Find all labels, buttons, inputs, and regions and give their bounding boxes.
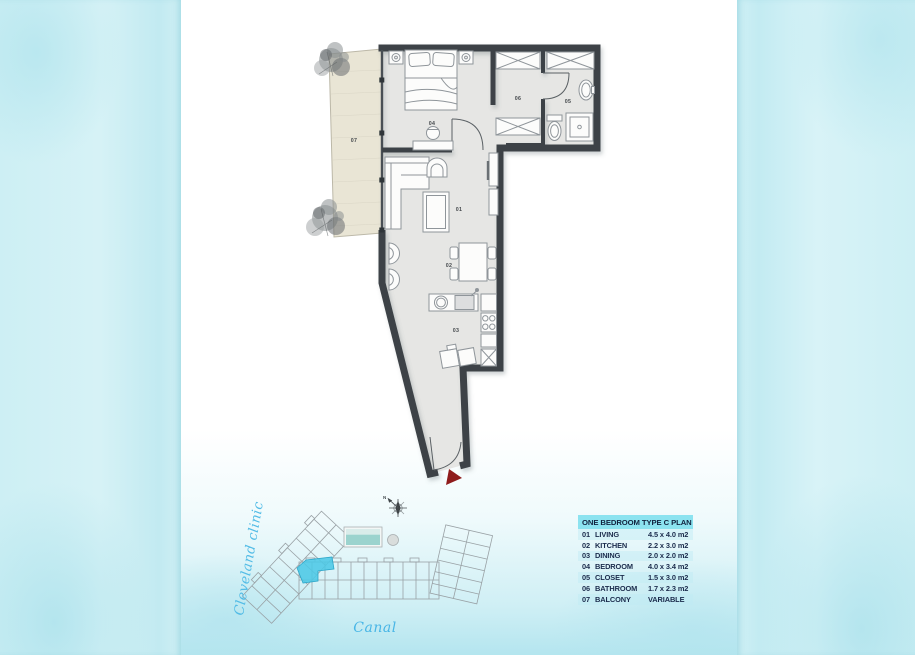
legend-row-closet: 05 CLOSET 1.5 x 3.0 m2 — [578, 572, 693, 583]
legend-room-dim: 4.5 x 4.0 m2 — [648, 530, 693, 539]
legend-row-living: 01 LIVING 4.5 x 4.0 m2 — [578, 529, 693, 540]
balcony-area: 07 — [329, 49, 382, 237]
legend-row-balcony: 07 BALCONY VARIABLE — [578, 594, 693, 605]
wardrobe-icon — [496, 118, 540, 135]
legend-room-dim: 1.5 x 3.0 m2 — [648, 573, 693, 582]
legend-room-dim: VARIABLE — [648, 595, 693, 604]
tree-icon — [314, 42, 350, 76]
nightstand-icon — [389, 51, 403, 64]
legend-room-dim: 4.0 x 3.4 m2 — [648, 562, 693, 571]
legend-room-dim: 1.7 x 2.3 m2 — [648, 584, 693, 593]
legend-room-name: DINING — [595, 551, 648, 560]
legend-room-dim: 2.2 x 3.0 m2 — [648, 541, 693, 550]
legend-room-id: 05 — [582, 573, 595, 582]
coffee-table-icon — [423, 192, 449, 232]
legend-row-bathroom: 06 BATHROOM 1.7 x 2.3 m2 — [578, 583, 693, 594]
legend-room-id: 03 — [582, 551, 595, 560]
site-round-feature — [388, 535, 399, 546]
legend-room-name: BATHROOM — [595, 584, 648, 593]
washer-icon — [481, 349, 497, 366]
legend-room-name: CLOSET — [595, 573, 648, 582]
canal-label: Canal — [353, 620, 396, 636]
room-label-living: 01 — [456, 207, 463, 213]
cleveland-clinic-label: Cleveland clinic — [231, 500, 267, 616]
legend-row-dining: 03 DINING 2.0 x 2.0 m2 — [578, 551, 693, 562]
legend-room-id: 02 — [582, 541, 595, 550]
legend-title: ONE BEDROOM TYPE C PLAN — [578, 515, 693, 529]
legend-row-bedroom: 04 BEDROOM 4.0 x 3.4 m2 — [578, 561, 693, 572]
legend-room-name: BALCONY — [595, 595, 648, 604]
legend-room-id: 04 — [582, 562, 595, 571]
bath-storage-icon — [547, 52, 594, 69]
legend-room-id: 06 — [582, 584, 595, 593]
legend-panel: ONE BEDROOM TYPE C PLAN 01 LIVING 4.5 x … — [578, 515, 693, 605]
legend-row-kitchen: 02 KITCHEN 2.2 x 3.0 m2 — [578, 540, 693, 551]
site-wing-right — [430, 525, 493, 604]
compass-icon: N — [383, 495, 407, 517]
compass-north-letter: N — [383, 495, 387, 500]
toilet-icon — [547, 115, 562, 141]
room-label-bath: 05 — [565, 99, 572, 105]
legend-room-id: 01 — [582, 530, 595, 539]
site-plan — [239, 508, 492, 623]
wardrobe-icon — [496, 52, 540, 69]
fridge-icon — [481, 294, 497, 311]
room-label-kitchen: 03 — [453, 328, 460, 334]
room-label-bedroom: 04 — [429, 121, 436, 127]
shower-icon — [566, 113, 593, 141]
legend-room-id: 07 — [582, 595, 595, 604]
room-label-dining: 02 — [446, 263, 453, 269]
legend-room-name: KITCHEN — [595, 541, 648, 550]
legend-room-name: LIVING — [595, 530, 648, 539]
armchair-icon — [427, 158, 447, 177]
cabinet-icon — [481, 334, 497, 347]
stove-icon — [481, 313, 497, 332]
bed-icon — [405, 50, 457, 110]
room-label-closet: 06 — [515, 96, 522, 102]
nightstand-icon — [459, 51, 473, 64]
floorplan-canvas: 07 — [0, 0, 915, 655]
room-label-balcony: 07 — [351, 138, 358, 144]
legend-room-dim: 2.0 x 2.0 m2 — [648, 551, 693, 560]
legend-room-name: BEDROOM — [595, 562, 648, 571]
pool-icon — [344, 527, 382, 547]
entrance-arrow-icon — [446, 469, 462, 485]
